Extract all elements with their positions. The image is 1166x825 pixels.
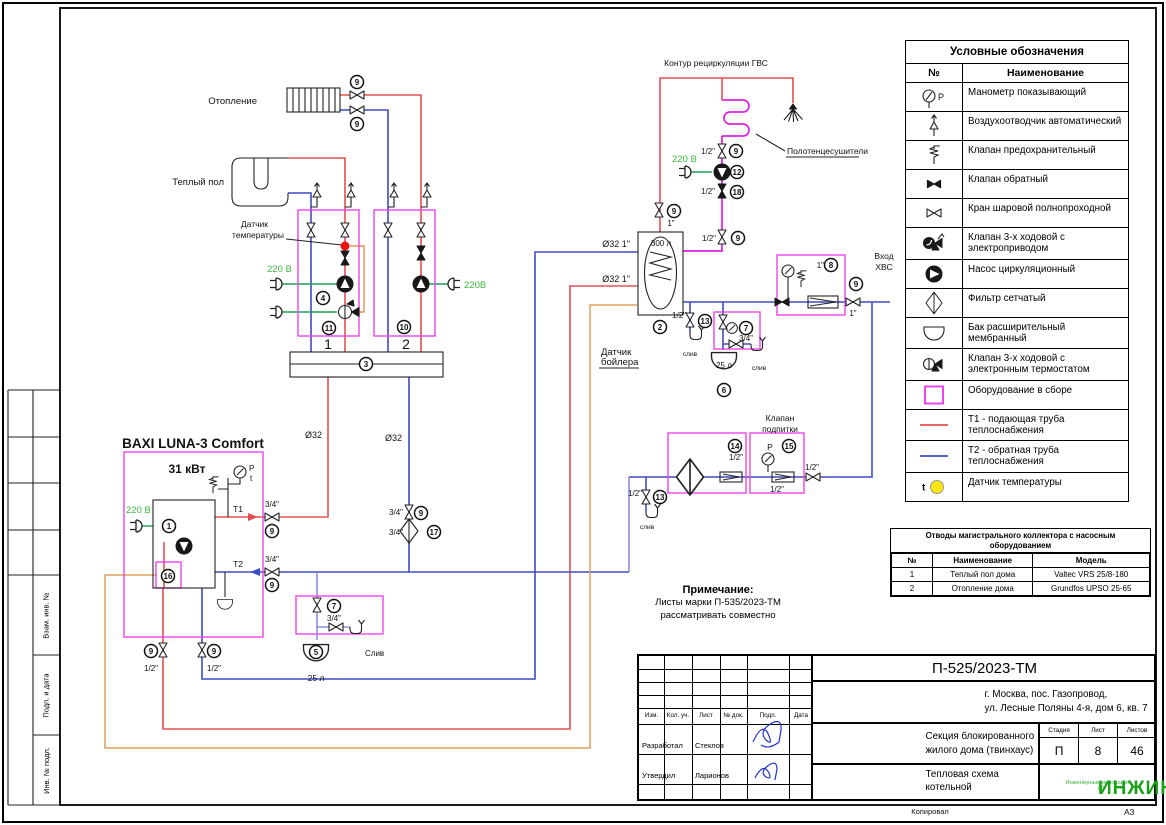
legend-row-name: Фильтр сетчатый [963, 289, 1128, 317]
diagram-label: 1/2" [770, 485, 784, 494]
item-tag: 16 [162, 570, 175, 583]
ball-valve-icon [198, 643, 206, 657]
legend-row: Т1 - подающая труба теплоснабжения [906, 410, 1128, 442]
developed-by: Стеклов [695, 742, 724, 750]
ball-valve-icon [642, 490, 650, 504]
legend-row: Оборудование в сборе [906, 381, 1128, 410]
temperature-sensor-dot [341, 242, 350, 251]
diagram-label: Полотенцесушители [787, 146, 868, 156]
item-tag: 9 [351, 76, 364, 89]
note-line-2: рассматривать совместно [618, 609, 818, 622]
svg-text:9: 9 [672, 207, 677, 216]
legend-row-name: Датчик температуры [963, 473, 1128, 501]
check-valve-icon [341, 251, 349, 265]
address-line-1: г. Москва, пос. Газопровод, [985, 688, 1108, 702]
item-tag: 9 [732, 232, 745, 245]
svg-text:9: 9 [419, 509, 424, 518]
pressure-gauge-icon [727, 323, 738, 334]
developed-label: Разработал [642, 742, 683, 750]
diagram-label: 3/4" [739, 334, 753, 343]
legend-row-name: Клапан 3-х ходовой с электронным термост… [963, 349, 1128, 380]
svg-text:9: 9 [270, 581, 275, 590]
item-tag: 9 [208, 645, 221, 658]
threeway-el-icon [911, 229, 957, 257]
three-way-valve-icon [339, 300, 360, 319]
ball-valve-icon [655, 203, 663, 217]
diagram-label: 25 л [716, 361, 732, 370]
stage-label: Стадия [1040, 724, 1079, 738]
strip-cell-podp: Подп. и дата [33, 655, 60, 735]
ball-icon [911, 199, 957, 227]
approved-label: Утвердил [642, 772, 675, 780]
item-tag: 9 [266, 579, 279, 592]
ball-valve-icon [417, 223, 425, 237]
item-tag: 5 [310, 646, 323, 659]
ball-valve-icon [686, 313, 694, 327]
svg-text:8: 8 [829, 261, 834, 270]
legend-title: Условные обозначения [906, 41, 1128, 64]
collector-cell: 1 [892, 568, 933, 582]
legend-row: Воздухоотводчик автоматический [906, 112, 1128, 141]
item-tag: 8 [825, 259, 838, 272]
stage-value: П [1040, 738, 1079, 765]
ball-valve-icon [718, 230, 726, 244]
pressure-gauge-icon [234, 466, 246, 478]
diagram-label: 1/2" [729, 453, 743, 462]
item-tag: 9 [730, 145, 743, 158]
diagram-label: T2 [233, 559, 243, 569]
svg-text:7: 7 [744, 324, 749, 333]
ball-valve-icon [307, 223, 315, 237]
pump-icon [714, 164, 730, 180]
collector-cell: Grundfos UPSO 25-65 [1033, 582, 1150, 596]
svg-text:17: 17 [430, 528, 439, 537]
legend-row-name: Клапан обратный [963, 170, 1128, 198]
sheets-label: Листов [1118, 724, 1156, 738]
revision-header-cell: Изм. [639, 708, 664, 724]
legend-header: № Наименование [906, 64, 1128, 83]
check-valve-icon [718, 184, 726, 198]
legend-row: Клапан обратный [906, 170, 1128, 199]
item-tag: 13 [699, 315, 712, 328]
svg-text:12: 12 [733, 168, 742, 177]
legend-row-name: Клапан 3-х ходовой с электроприводом [963, 228, 1128, 259]
svg-text:9: 9 [212, 647, 217, 656]
svg-text:18: 18 [733, 188, 742, 197]
svg-text:15: 15 [785, 442, 794, 451]
diagram-label: 1/2" [702, 234, 716, 243]
legend-row: Клапан 3-х ходовой с электроприводом [906, 228, 1128, 260]
collector-table-title-1: Отводы магистрального коллектора с насос… [926, 531, 1116, 540]
svg-text:9: 9 [355, 120, 360, 129]
company-logo: ИНЖИН® Инженерные инновации [1040, 765, 1156, 799]
collector-cell: Valtec VRS 25/8-180 [1033, 568, 1150, 582]
svg-text:4: 4 [321, 294, 326, 303]
svg-text:9: 9 [854, 280, 859, 289]
legend-row-name: Бак расширительный мембранный [963, 318, 1128, 349]
ball-valve-icon [350, 106, 364, 114]
diagram-label: Теплый пол [172, 177, 224, 188]
copied-label: Копировал [870, 807, 990, 816]
title-block: Изм.Кол. уч.Лист№ док.Подп.Дата Разработ… [637, 654, 1156, 801]
document-number: П-525/2023-ТМ [813, 656, 1156, 682]
legend-row-name: Воздухоотводчик автоматический [963, 112, 1128, 140]
legend-row: Клапан предохранительный [906, 141, 1128, 170]
item-tag: 9 [850, 278, 863, 291]
diagram-label: Отопление [208, 96, 257, 107]
ball-valve-icon [384, 223, 392, 237]
revision-header-cell: Лист [692, 708, 720, 724]
item-tag: 12 [731, 166, 744, 179]
diagram-label: 25 л [308, 673, 325, 683]
collector-col-header: Модель [1033, 554, 1150, 568]
plug-icon [679, 166, 691, 178]
pump-icon [413, 276, 429, 292]
diagram-label: 3/4" [327, 614, 341, 623]
diagram-label: 3/4" [265, 500, 279, 509]
item-tag: 4 [317, 292, 330, 305]
plug-icon [448, 278, 460, 290]
ball-valve-icon [265, 568, 279, 576]
item-tag: 11 [323, 322, 336, 335]
legend-col-name: Наименование [963, 64, 1128, 82]
sheet-name-line-1: Тепловая схема [926, 768, 999, 781]
diagram-label: BAXI LUNA-3 Comfort [122, 436, 264, 451]
air-vent-icon [423, 183, 431, 204]
revision-header-cell: № док. [720, 708, 747, 724]
diagram-label: 1/2" [207, 664, 221, 673]
air-vent-icon [313, 183, 321, 204]
legend-row: Клапан 3-х ходовой с электронным термост… [906, 349, 1128, 381]
note-line-1: Листы марки П-535/2023-ТМ [618, 596, 818, 609]
legend-row-name: Клапан предохранительный [963, 141, 1128, 169]
diagram-label: Ø32 [305, 430, 322, 440]
item-tag: 10 [398, 321, 411, 334]
diagram-label: 1" [849, 309, 856, 318]
diagram-label: 1" [817, 261, 824, 270]
manometer-icon [911, 83, 957, 111]
boiler-internals [153, 466, 246, 609]
diagram-label: бойлера [601, 357, 639, 368]
diagram-label: 300 л [651, 239, 672, 248]
svg-text:9: 9 [149, 647, 154, 656]
ball-valve-icon [806, 473, 820, 481]
diagram-label: Датчик [241, 219, 268, 229]
signature-scribbles [745, 712, 791, 792]
item-tag: 1 [163, 520, 176, 533]
filter-icon [911, 289, 957, 317]
item-tag: 9 [145, 645, 158, 658]
ball-valve-icon [719, 315, 727, 329]
svg-text:13: 13 [656, 493, 665, 502]
pressure-gauge-icon [762, 453, 774, 465]
legend-row-name: Т1 - подающая труба теплоснабжения [963, 410, 1128, 441]
item-tag: 9 [415, 507, 428, 520]
plug-icon [270, 278, 282, 290]
collector-col-header: Наименование [933, 554, 1033, 568]
svg-text:10: 10 [400, 323, 409, 332]
collector-cell: 2 [892, 582, 933, 596]
collector-outlets-table: Отводы магистрального коллектора с насос… [890, 528, 1151, 597]
boiler-sensor-cable [105, 305, 637, 748]
diagram-label: 1/2" [144, 664, 158, 673]
revision-header-cell: Кол. уч. [664, 708, 692, 724]
t1-supply-pipes [163, 78, 793, 729]
equipment [153, 88, 860, 661]
svg-text:6: 6 [722, 386, 727, 395]
svg-text:2: 2 [658, 323, 663, 332]
diagram-label: 3/4" [389, 528, 403, 537]
pressure-gauge-icon [782, 265, 794, 277]
svg-text:3: 3 [364, 360, 369, 369]
diagram-label: 1/2" [701, 187, 715, 196]
ball-valve-icon [329, 623, 343, 631]
pump-icon [911, 260, 957, 288]
ball-valve-icon [846, 298, 860, 306]
floor-heating-loop-icon [232, 158, 288, 206]
shower-icon [784, 104, 803, 122]
diagram-label: 220 В [126, 505, 151, 516]
exptank-icon [911, 319, 957, 347]
logo-text: ИНЖИН [1098, 778, 1166, 800]
item-tag: 17 [428, 526, 441, 539]
ball-valve-icon [313, 598, 321, 612]
diagram-label: Ø32 [385, 433, 402, 443]
ball-valve-icon [718, 144, 726, 158]
diagram-label: Слив [365, 649, 384, 658]
collector-cell: Теплый пол дома [933, 568, 1033, 582]
item-tag: 3 [360, 358, 373, 371]
note-block: Примечание: Листы марки П-535/2023-ТМ ра… [618, 584, 818, 623]
diagram-label: P [249, 464, 254, 473]
legend-col-no: № [906, 64, 963, 82]
airvent-icon [911, 112, 957, 140]
object-line-2: жилого дома (твинхаус) [926, 744, 1034, 758]
diagram-label: 220 В [672, 154, 697, 165]
diagram-label: 3/4" [265, 555, 279, 564]
pump-icon [337, 276, 353, 292]
title-block-revision-grid: Изм.Кол. уч.Лист№ док.Подп.Дата Разработ… [639, 656, 813, 799]
sheet-label: Лист [1079, 724, 1118, 738]
collector-col-header: № [892, 554, 933, 568]
item-tag: 13 [654, 491, 667, 504]
legend-row-name: Манометр показывающий [963, 83, 1128, 111]
diagram-label: температуры [232, 230, 284, 240]
sheet-value: 8 [1079, 738, 1118, 765]
check-valve-icon [417, 246, 425, 260]
legend-row-name: Т2 - обратная труба теплоснабжения [963, 441, 1128, 472]
pump-icon [176, 538, 192, 554]
legend-row: Кран шаровой полнопроходной [906, 199, 1128, 228]
sheet-name-line-2: котельной [926, 781, 972, 794]
legend-row: Датчик температуры [906, 473, 1128, 501]
strip-cell-vzam: Взам. инв. № [33, 575, 60, 655]
strainer-icon [677, 459, 704, 495]
diagram-label: Ø32 1" [602, 239, 630, 249]
drain-icon [690, 326, 705, 340]
diagram-label: 220 В [267, 264, 292, 275]
svg-text:7: 7 [332, 602, 337, 611]
safety-valve-icon [797, 271, 806, 287]
diagram-label: 3/4" [389, 508, 403, 517]
t1-line-icon [911, 411, 957, 439]
diagram-label: 220В [464, 280, 486, 291]
diagram-label: T1 [233, 504, 243, 514]
revision-header-cell: Дата [789, 708, 813, 724]
legend-table: Условные обозначения № Наименование Мано… [905, 40, 1129, 502]
threeway-th-icon [911, 350, 957, 378]
note-title: Примечание: [618, 584, 818, 596]
diagram-label: 2 [402, 336, 410, 352]
diagram-label: 31 кВт [168, 462, 205, 476]
address-line-2: ул. Лесные Поляны 4-я, дом 6, кв. 7 [985, 702, 1148, 716]
strip-cell-inv: Инв. № подл. [33, 735, 60, 805]
item-tag: 2 [654, 321, 667, 334]
plug-icon [270, 306, 282, 318]
drain-icon [646, 504, 661, 518]
tsensor-icon [911, 473, 957, 501]
ball-valve-icon [350, 91, 364, 99]
diagram-label: Ø32 1" [602, 274, 630, 284]
legend-row: Т2 - обратная труба теплоснабжения [906, 441, 1128, 473]
item-tag: 14 [729, 440, 742, 453]
ball-valve-icon [265, 513, 279, 521]
svg-text:5: 5 [314, 648, 319, 657]
diagram-label: 1/2" [805, 463, 819, 472]
diagram-label: ХВС [875, 262, 892, 272]
item-tag: 9 [351, 118, 364, 131]
svg-text:11: 11 [325, 324, 334, 333]
item-tag: 9 [668, 205, 681, 218]
diagram-label: 1" [667, 219, 674, 228]
item-tag: 15 [783, 440, 796, 453]
safety-icon [911, 141, 957, 169]
diagram-label: 1 [324, 336, 332, 352]
object-line-1: Секция блокированного [926, 730, 1035, 744]
legend-row-name: Кран шаровой полнопроходной [963, 199, 1128, 227]
legend-row: Бак расширительный мембранный [906, 318, 1128, 350]
legend-row-name: Насос циркуляционный [963, 260, 1128, 288]
assembly-boxes [124, 210, 845, 637]
legend-row: Фильтр сетчатый [906, 289, 1128, 318]
ball-valve-icon [405, 505, 413, 519]
safety-valve-icon [209, 477, 218, 493]
diagram-label: Клапан [766, 413, 795, 423]
diagram-label: слив [683, 351, 698, 358]
svg-text:1: 1 [167, 522, 172, 531]
svg-text:9: 9 [355, 78, 360, 87]
sheets-value: 46 [1118, 738, 1156, 765]
check-valve-icon [775, 298, 789, 306]
legend-row-name: Оборудование в сборе [963, 381, 1128, 409]
diagram-label: слив [640, 524, 655, 531]
logo-registered-mark: ® [1098, 778, 1105, 800]
svg-text:9: 9 [736, 234, 741, 243]
plug-icon [130, 520, 142, 532]
diagram-label: подпитки [762, 424, 798, 434]
diagram-label: слив [752, 365, 767, 372]
format-label: А3 [1124, 807, 1134, 817]
item-tag: 9 [266, 525, 279, 538]
diagram-label: P [767, 442, 773, 452]
approved-by: Ларионов [695, 772, 729, 780]
expansion-vessel-icon [218, 600, 233, 610]
svg-text:9: 9 [734, 147, 739, 156]
drain-icon [350, 620, 365, 634]
schematic-page: Р t [0, 0, 1166, 825]
t2-arrow [250, 568, 260, 576]
t2-line-icon [911, 442, 957, 470]
assembly-icon [911, 381, 957, 409]
ball-valve-icon [341, 223, 349, 237]
item-tag: 7 [328, 600, 341, 613]
diagram-label: 1/2" [628, 489, 642, 498]
ball-valve-icon [159, 643, 167, 657]
item-tag: 6 [718, 384, 731, 397]
collector-table-title-2: оборудованием [990, 541, 1051, 550]
legend-row: Манометр показывающий [906, 83, 1128, 112]
svg-text:13: 13 [701, 317, 710, 326]
diagram-label: 1/2" [672, 311, 686, 320]
t1-arrow [248, 513, 258, 521]
diagram-label: t [250, 474, 253, 483]
svg-text:14: 14 [731, 442, 740, 451]
air-vent-icon [347, 183, 355, 204]
diagram-label: Контур рециркуляции ГВС [664, 58, 768, 68]
item-tag: 7 [740, 322, 753, 335]
svg-text:16: 16 [164, 572, 173, 581]
svg-text:9: 9 [270, 527, 275, 536]
collector-cell: Отопление дома [933, 582, 1033, 596]
air-vent-icon [390, 183, 398, 204]
radiator-icon [287, 88, 340, 112]
diagram-label: 1/2" [701, 147, 715, 156]
diagram-label: Вход [874, 251, 893, 261]
legend-row: Насос циркуляционный [906, 260, 1128, 289]
item-tag: 18 [731, 186, 744, 199]
check-icon [911, 170, 957, 198]
